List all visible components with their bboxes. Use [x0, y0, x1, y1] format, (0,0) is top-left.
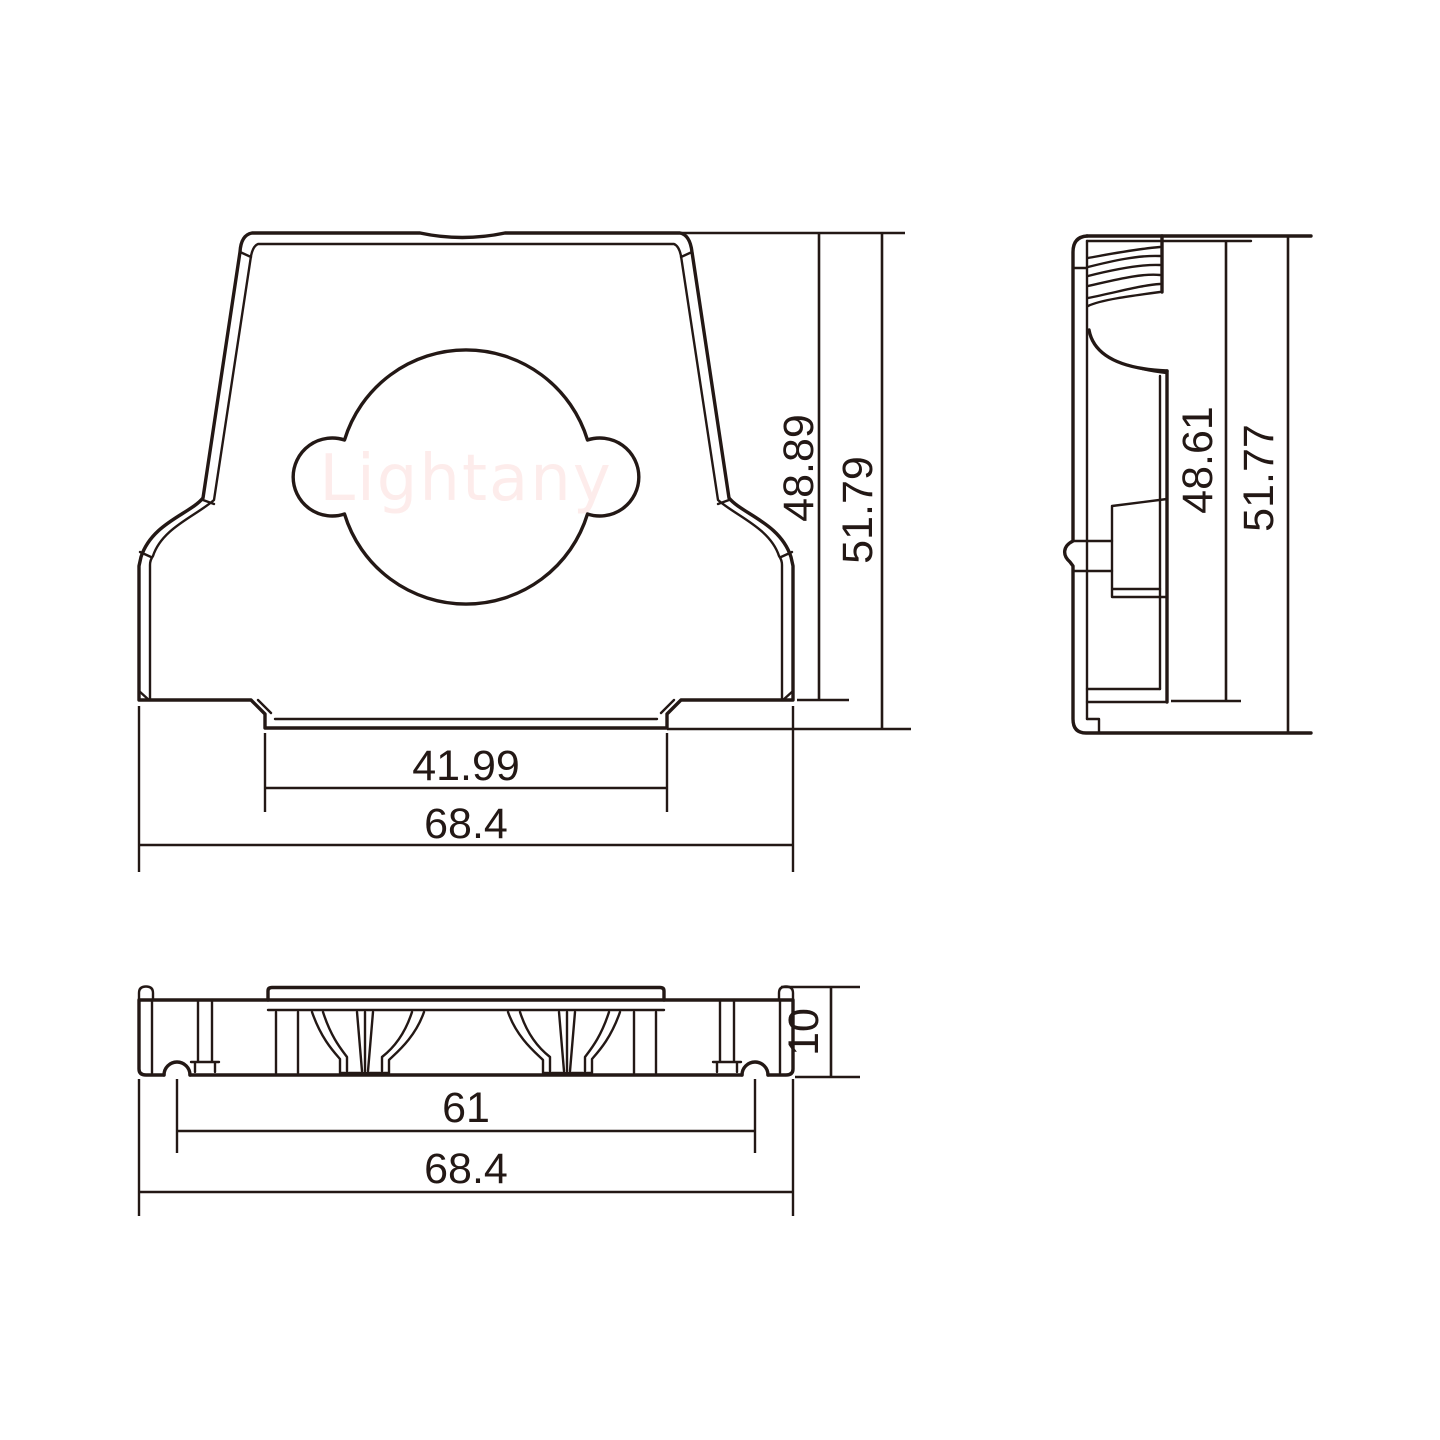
front-inner-height-value: 48.89 — [775, 414, 823, 522]
bottom-right-funnel — [508, 1012, 620, 1073]
bottom-outer-width-value: 68.4 — [424, 1145, 508, 1193]
side-inner-height-value: 48.61 — [1174, 406, 1222, 514]
side-outer-height-value: 51.77 — [1235, 424, 1283, 532]
bottom-inner-width-value: 61 — [442, 1084, 490, 1132]
bottom-outer-contour — [139, 1000, 793, 1075]
technical-drawing-page: Lightany 48.89 51.79 41.99 68.4 — [0, 0, 1440, 1440]
front-inner-width-value: 41.99 — [412, 742, 520, 790]
front-view: 48.89 51.79 41.99 68.4 — [139, 233, 911, 872]
side-view: 48.61 51.77 — [1065, 236, 1311, 733]
watermark-text: Lightany — [319, 442, 612, 516]
front-outer-height-value: 51.79 — [834, 456, 882, 564]
bottom-center-strip — [268, 988, 664, 1001]
bottom-left-funnel — [312, 1012, 424, 1073]
bottom-screw-notches — [164, 1062, 768, 1075]
side-right-edges — [1162, 236, 1167, 702]
backshell-technical-drawing: Lightany 48.89 51.79 41.99 68.4 — [0, 0, 1440, 1440]
bottom-height-value: 10 — [780, 1008, 828, 1056]
front-rim-details — [139, 691, 793, 719]
front-outer-width-value: 68.4 — [424, 800, 508, 848]
side-clamp-lines — [1073, 541, 1112, 571]
side-middle-block — [1112, 499, 1167, 597]
side-bottom-interior — [1087, 689, 1167, 733]
bottom-view: 61 68.4 10 — [139, 987, 860, 1217]
side-wire-fan — [1088, 247, 1160, 306]
